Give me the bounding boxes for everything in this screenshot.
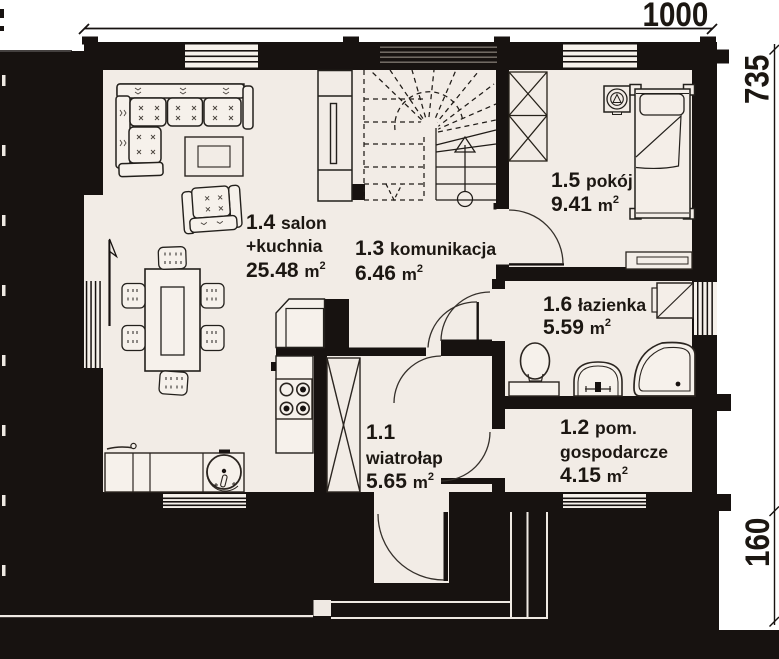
svg-text:wiatrołap: wiatrołap <box>365 448 443 468</box>
svg-text:25.48 m2: 25.48 m2 <box>246 259 326 282</box>
svg-text:6.46 m2: 6.46 m2 <box>355 262 423 285</box>
svg-text:gospodarcze: gospodarcze <box>560 442 668 462</box>
svg-text:1.4 salon: 1.4 salon <box>246 211 327 234</box>
svg-text:5.65 m2: 5.65 m2 <box>366 470 434 493</box>
svg-text:1.2 pom.: 1.2 pom. <box>560 416 637 439</box>
svg-text:5.59 m2: 5.59 m2 <box>543 316 611 339</box>
svg-text:1.6 łazienka: 1.6 łazienka <box>543 293 646 316</box>
svg-text:735: 735 <box>738 55 776 104</box>
svg-text:160: 160 <box>738 518 776 567</box>
svg-text:4.15 m2: 4.15 m2 <box>560 464 628 487</box>
svg-text:1000: 1000 <box>643 0 709 33</box>
svg-text:1.3 komunikacja: 1.3 komunikacja <box>355 237 496 260</box>
svg-text:1.1: 1.1 <box>366 421 396 444</box>
svg-text:9.41 m2: 9.41 m2 <box>551 193 619 216</box>
svg-text:+kuchnia: +kuchnia <box>246 236 323 256</box>
svg-text:1.5 pokój: 1.5 pokój <box>551 169 633 192</box>
